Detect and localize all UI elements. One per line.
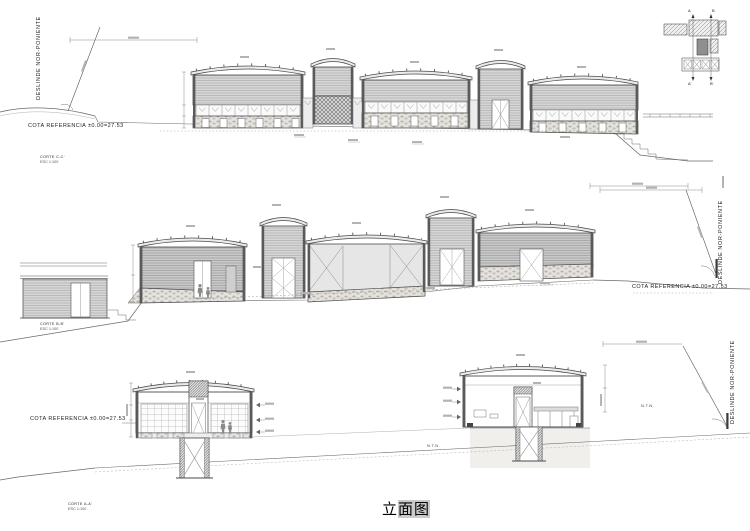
cota-referencia-label-middle: COTA REFERENCIA ±0.00=27.53	[632, 285, 728, 291]
deslinde-label-top: DESLINDE NOR-PONIENTE	[37, 16, 43, 100]
drawing-sheet: DESLINDE NOR-PONIENTE COTA REFERENCIA ±0…	[0, 0, 750, 531]
section-title-corte-aa: CORTE A-A' ESC 1:100	[68, 502, 92, 512]
tower-elevation	[311, 59, 355, 125]
drawing-canvas	[0, 0, 750, 531]
ntn-label-2: N.T.N.	[641, 404, 654, 408]
cota-referencia-label-top: COTA REFERENCIA ±0.00=27.53	[28, 124, 124, 130]
building-elevation	[476, 223, 595, 282]
terrain-line	[0, 428, 750, 480]
keyplan-marker-a2: A'	[688, 82, 691, 86]
section-title-corte-bb: CORTE B-B' ESC 1:100	[40, 322, 64, 332]
boundary-line	[683, 346, 729, 429]
elevation-corte-bb	[0, 187, 750, 342]
boundary-line	[686, 190, 718, 278]
building-section	[133, 381, 254, 478]
deslinde-label-middle: DESLINDE NOR-PONIENTE	[719, 200, 725, 284]
keyplan-marker-b: B	[712, 9, 715, 13]
tower-elevation	[476, 61, 525, 130]
tower-elevation	[426, 210, 476, 287]
sheet-title-part2: 面图	[398, 500, 430, 518]
building-elevation	[528, 75, 638, 135]
key-plan	[664, 14, 726, 81]
sheet-title: 立面图	[382, 502, 430, 517]
section-title-corte-cc: CORTE C-C' ESC 1:100	[40, 155, 65, 165]
corte-aa-scale: ESC 1:100	[68, 507, 92, 512]
cota-referencia-label-bottom: COTA REFERENCIA ±0.00=27.53	[30, 417, 126, 423]
keyplan-marker-b2: B'	[710, 82, 713, 86]
boundary-line	[61, 27, 100, 111]
corte-cc-scale: ESC 1:100	[40, 160, 65, 165]
building-elevation	[306, 234, 427, 303]
building-elevation	[360, 70, 472, 129]
elevation-corte-cc	[0, 27, 724, 189]
keyplan-marker-a: A	[688, 9, 691, 13]
corte-bb-scale: ESC 1:100	[40, 327, 64, 332]
building-elevation	[191, 65, 305, 129]
sheet-title-part1: 立	[382, 500, 398, 518]
shed-elevation	[20, 276, 110, 318]
dimension-line	[603, 341, 682, 412]
deslinde-label-bottom: DESLINDE NOR-PONIENTE	[731, 340, 737, 424]
ntn-label-1: N.T.N.	[427, 444, 440, 448]
dimension-line	[129, 383, 133, 437]
elevation-corte-aa	[0, 341, 750, 480]
building-elevation	[138, 237, 247, 304]
tower-elevation	[260, 218, 307, 299]
